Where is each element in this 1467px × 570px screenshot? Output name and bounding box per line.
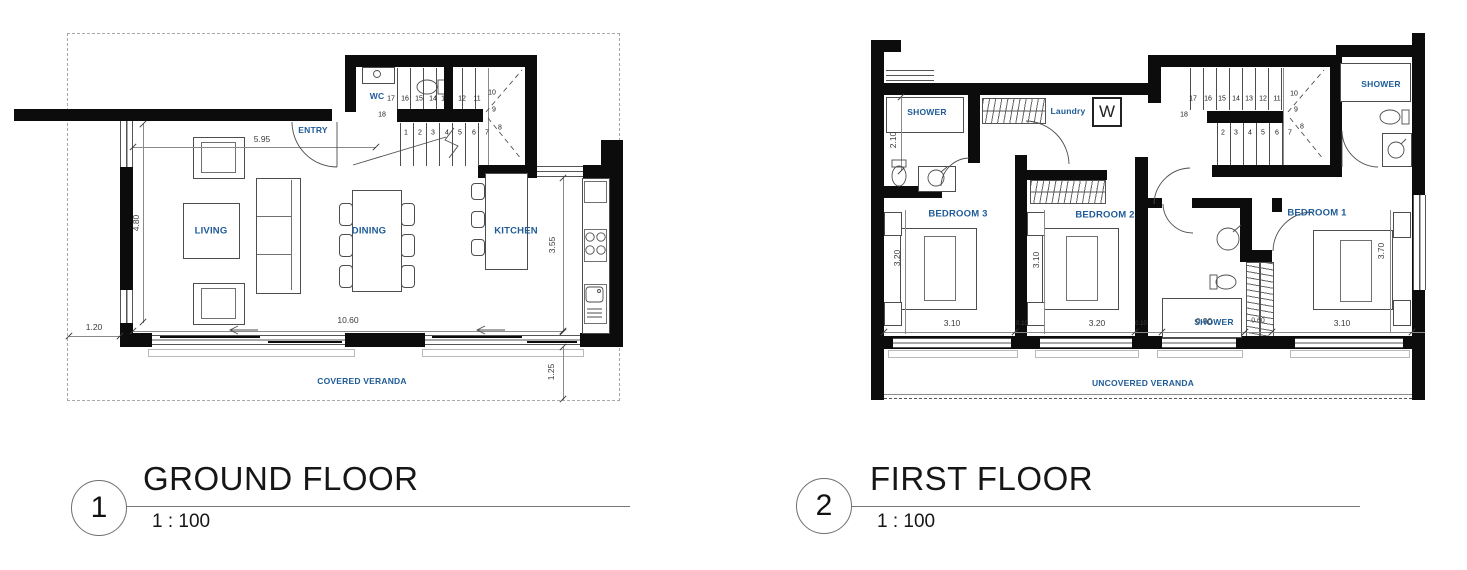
dim-text: 5.95 <box>254 134 271 144</box>
room-label-wc: WC <box>370 91 385 101</box>
door-arc <box>1026 121 1069 164</box>
toilet-tank <box>1402 110 1409 124</box>
room-label-entry: ENTRY <box>298 125 328 135</box>
door-arc <box>1163 204 1193 233</box>
shower-right-basin <box>1388 139 1406 158</box>
room-label-shower-mid: SHOWER <box>1194 317 1233 327</box>
dim-text: 3.55 <box>547 237 557 254</box>
toilet-bowl <box>892 166 906 186</box>
dim-text: 3.70 <box>1376 243 1386 260</box>
gf-stair-winder-lines <box>486 70 522 160</box>
room-label-dining: DINING <box>352 226 386 237</box>
dim-text: 0.10 <box>1016 321 1028 327</box>
stair-break-symbol <box>445 128 458 158</box>
dim-text: 3.20 <box>892 250 902 267</box>
area-label-uncovered-veranda: UNCOVERED VERANDA <box>1092 378 1194 388</box>
dim-text: 4.80 <box>131 215 141 232</box>
shower-right-toilet <box>1380 110 1409 124</box>
room-label-shower-left: SHOWER <box>907 107 946 117</box>
dim-text: 0.10 <box>1135 321 1147 327</box>
sliding-door-arrows <box>230 326 505 334</box>
dim-text: 0.60 <box>1251 318 1265 325</box>
ff-stair-winder-lines <box>1288 70 1324 160</box>
dim-text: 3.10 <box>944 318 961 328</box>
bath-corner-basin <box>1217 225 1241 250</box>
door-arc <box>1154 168 1190 204</box>
area-label-covered-veranda: COVERED VERANDA <box>317 376 406 386</box>
wc-toilet <box>417 80 445 94</box>
kitchen-sink <box>586 287 603 317</box>
room-label-laundry: Laundry <box>1051 106 1086 116</box>
room-label-kitchen: KITCHEN <box>494 226 538 237</box>
toilet-bowl <box>1216 275 1236 289</box>
room-label-bedroom1: BEDROOM 1 <box>1287 208 1346 219</box>
gf-stair-direction-line <box>353 128 458 165</box>
washing-machine-letter: W <box>1099 102 1115 122</box>
wc-basin <box>374 71 381 78</box>
fixtures-and-doors-layer <box>0 0 1467 570</box>
dim-text: 3.10 <box>1031 252 1041 269</box>
dim-text: 3.20 <box>1089 318 1106 328</box>
washing-machine-symbol: W <box>1092 97 1122 127</box>
room-label-living: LIVING <box>195 226 228 237</box>
room-label-bedroom2: BEDROOM 2 <box>1075 210 1134 221</box>
dim-text: 3.10 <box>1334 318 1351 328</box>
room-label-bedroom3: BEDROOM 3 <box>928 209 987 220</box>
bath-toilet <box>1210 275 1236 289</box>
ff-door-arcs <box>941 121 1378 251</box>
room-label-shower-right: SHOWER <box>1361 79 1400 89</box>
toilet-bowl <box>1380 110 1400 124</box>
shower-left-basin <box>928 167 947 186</box>
door-arc <box>941 158 969 186</box>
floor-plan-sheet: 17 16 15 14 13 12 11 10 9 8 1 2 3 4 5 6 … <box>0 0 1467 570</box>
toilet-bowl <box>417 80 437 94</box>
dim-text: 1.20 <box>86 322 103 332</box>
wall <box>444 55 453 112</box>
door-arc <box>1342 131 1378 167</box>
dim-text: 1.25 <box>546 364 556 381</box>
dim-text: 2.10 <box>888 132 898 149</box>
cooktop-burners <box>586 233 605 254</box>
dim-text: 10.60 <box>337 315 358 325</box>
